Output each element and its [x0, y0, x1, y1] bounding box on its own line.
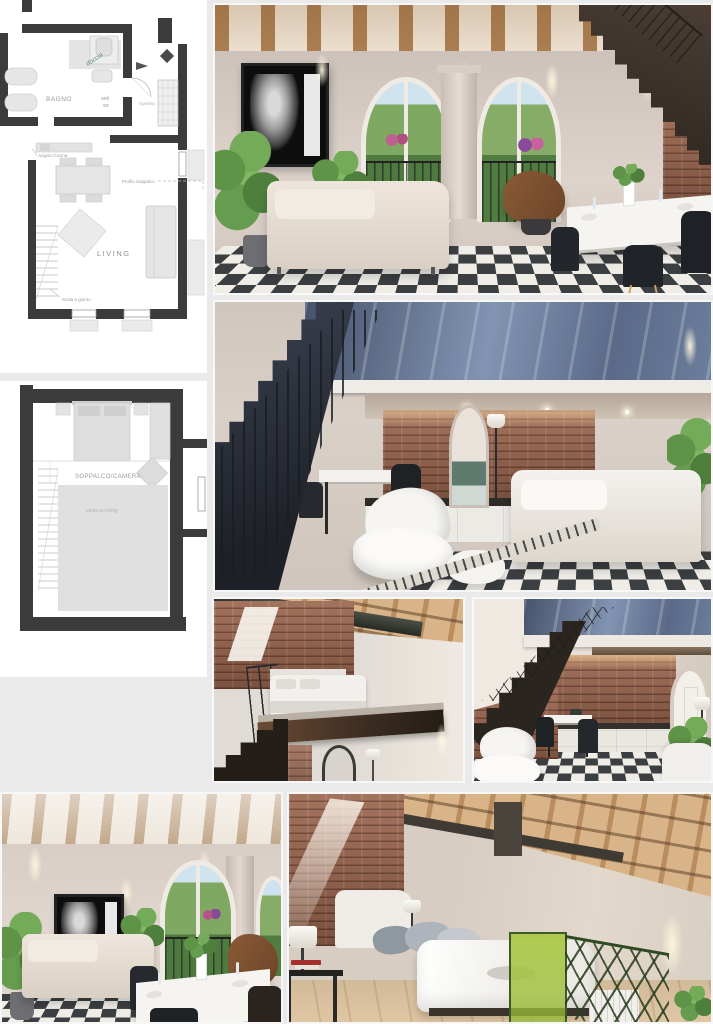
- pillow: [276, 679, 296, 689]
- label-vuoto: vuoto su living: [86, 508, 118, 514]
- dark-beam: [494, 802, 522, 856]
- label-scala: Scala a giorno: [62, 297, 91, 302]
- floor-lamp: [487, 414, 505, 428]
- wine-glass: [659, 189, 662, 201]
- render-attic-bedroom: [287, 792, 713, 1024]
- sofa-symbol: [146, 206, 176, 278]
- bedside-lamp: [403, 900, 421, 913]
- plate: [581, 213, 597, 221]
- plate: [232, 979, 248, 988]
- wall-sconce: [436, 723, 448, 757]
- wall-sconce: [683, 326, 697, 366]
- plan2-furniture: [33, 401, 170, 611]
- eames-chair-seat: [474, 755, 540, 783]
- floor-lamp: [694, 697, 710, 710]
- floor-plan-mezzanine: SOPPALCO/CAMERA vuoto su living: [0, 381, 207, 677]
- label-wc: wc: [103, 103, 110, 109]
- floor-lamp: [366, 749, 380, 760]
- arched-doorway: [449, 405, 489, 508]
- wine-glass: [236, 962, 239, 974]
- dining-chair: [150, 1008, 198, 1024]
- sofa: [267, 181, 449, 269]
- wall-sconce: [315, 53, 329, 87]
- green-glass-panel: [509, 932, 567, 1024]
- flower-box: [384, 134, 410, 146]
- label-anti: anti: [101, 96, 109, 102]
- lounge-chair: [503, 171, 565, 223]
- staircase: [214, 719, 288, 781]
- sofa: [662, 743, 713, 783]
- plate: [146, 990, 162, 999]
- wine-glass: [593, 197, 596, 209]
- dining-chair: [551, 227, 579, 271]
- spotlight: [625, 410, 629, 414]
- flower-box: [516, 138, 546, 152]
- wood-beam: [592, 647, 713, 655]
- plan-entry: [132, 49, 178, 126]
- ceiling-beams: [2, 794, 281, 844]
- flower-box: [199, 909, 221, 921]
- plate: [677, 203, 693, 211]
- plan2-window: [198, 477, 205, 511]
- label-angolo-cucina: Angolo Cucina: [38, 153, 68, 158]
- dining-table: [56, 166, 110, 194]
- loft-glass-balustrade: [524, 599, 713, 637]
- wine-glass: [158, 972, 161, 984]
- lily-flowers: [611, 163, 645, 188]
- loft-fascia: [305, 380, 713, 393]
- skylight-patch: [227, 607, 279, 661]
- plan2-plant-symbol: [136, 457, 167, 488]
- stair-railing: [565, 935, 669, 1024]
- void-area: [58, 485, 168, 611]
- render-collage-page: doccia BAGNO anti wc ingresso Angolo Cuc…: [0, 0, 713, 1024]
- lily-flowers: [182, 932, 218, 960]
- dining-chair: [536, 717, 554, 747]
- render-loft-stairs-lounge: [213, 300, 713, 592]
- label-living: LIVING: [97, 249, 131, 258]
- dining-chair: [248, 986, 282, 1024]
- plan-plant-symbol: [160, 49, 174, 63]
- wardrobe: [150, 403, 170, 459]
- plan-kitchen-living: [36, 143, 203, 300]
- pillow: [300, 679, 320, 689]
- render-kitchen-under-stairs: [472, 597, 713, 783]
- table-lamp: [289, 926, 317, 948]
- arched-mirror: [322, 745, 356, 783]
- dining-chair: [681, 211, 713, 273]
- render-living-room-arched-windows: [213, 3, 713, 295]
- sofa: [511, 470, 701, 562]
- dining-chair: [623, 245, 663, 287]
- floor-plan-mezzanine-drawing: SOPPALCO/CAMERA vuoto su living: [0, 381, 207, 677]
- entry-arrow: [136, 62, 148, 70]
- label-ingresso: ingresso: [139, 101, 155, 106]
- wall-sconce: [28, 846, 42, 884]
- floor-plan-first-level: doccia BAGNO anti wc ingresso Angolo Cuc…: [0, 0, 207, 373]
- render-mezzanine-bedroom: [212, 597, 465, 783]
- dining-chair: [578, 719, 598, 753]
- potted-plant: [673, 986, 713, 1024]
- books: [295, 965, 319, 969]
- label-profilo-soppalco: Profilo Soppalco: [122, 179, 155, 184]
- label-soppalco-camera: SOPPALCO/CAMERA: [75, 474, 141, 480]
- label-bagno: BAGNO: [46, 96, 72, 103]
- floor-plan-first-level-drawing: doccia BAGNO anti wc ingresso Angolo Cuc…: [0, 0, 207, 373]
- render-living-room-dining-view: [0, 792, 283, 1024]
